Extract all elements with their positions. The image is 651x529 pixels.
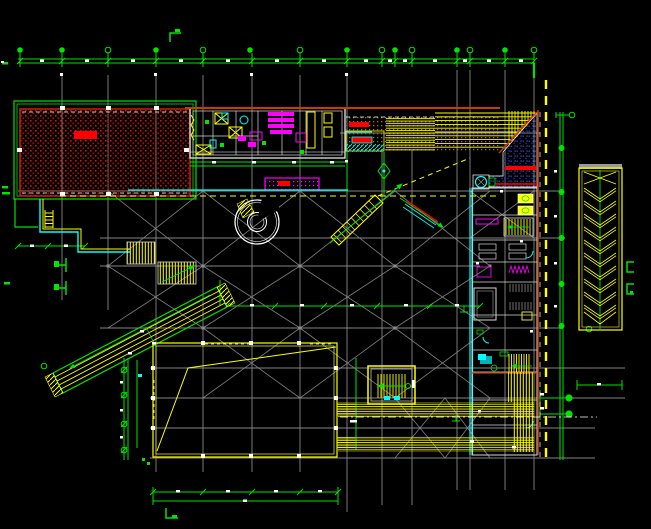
stage-red-bar bbox=[74, 131, 97, 139]
red-hatched-hall bbox=[14, 101, 196, 199]
yellow-hatch-strip bbox=[386, 117, 435, 151]
floor-plan-canvas[interactable] bbox=[0, 0, 651, 529]
cad-viewport[interactable] bbox=[0, 0, 651, 529]
stair-block-1 bbox=[127, 242, 155, 264]
reception-desk bbox=[265, 178, 319, 190]
background bbox=[0, 0, 651, 529]
